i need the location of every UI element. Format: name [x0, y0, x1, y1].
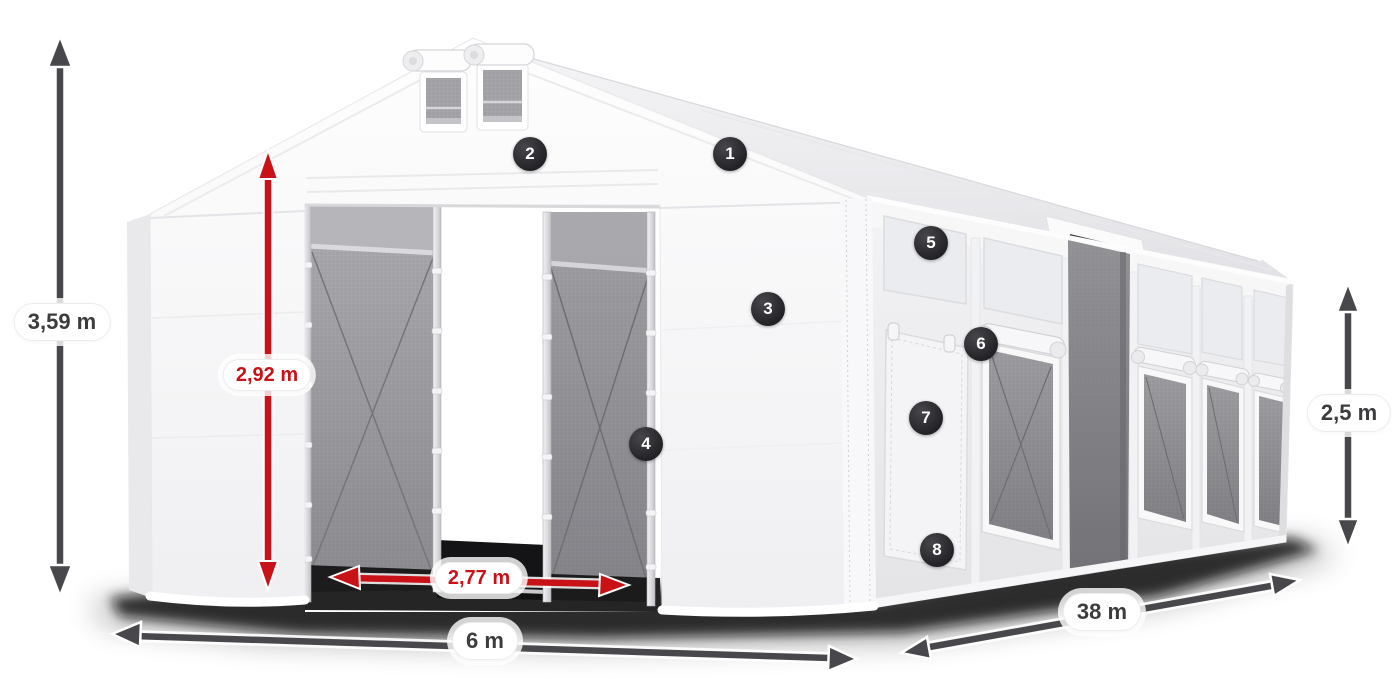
dimension-label-entrance-height: 2,92 m	[223, 359, 311, 391]
part-marker-3[interactable]: 3	[751, 292, 785, 326]
tent-illustration	[0, 0, 1400, 700]
dimension-label-tent-width: 6 m	[452, 622, 518, 660]
dimension-label-tent-length: 38 m	[1063, 593, 1141, 631]
corner-pillar	[840, 198, 876, 610]
dimension-label-entrance-width: 2,77 m	[435, 562, 523, 594]
part-marker-6[interactable]: 6	[964, 327, 998, 361]
part-marker-5[interactable]: 5	[914, 226, 948, 260]
part-marker-8[interactable]: 8	[920, 533, 954, 567]
part-marker-7[interactable]: 7	[909, 401, 943, 435]
dimension-label-side-height: 2,5 m	[1307, 394, 1391, 432]
dimension-label-total-height: 3,59 m	[14, 303, 111, 341]
front-doorway-interior	[302, 200, 660, 612]
part-marker-2[interactable]: 2	[513, 137, 547, 171]
part-marker-4[interactable]: 4	[629, 427, 663, 461]
part-marker-1[interactable]: 1	[713, 137, 747, 171]
product-diagram: 3,59 m 2,92 m 2,77 m 6 m 38 m 2,5 m 1 2 …	[0, 0, 1400, 700]
